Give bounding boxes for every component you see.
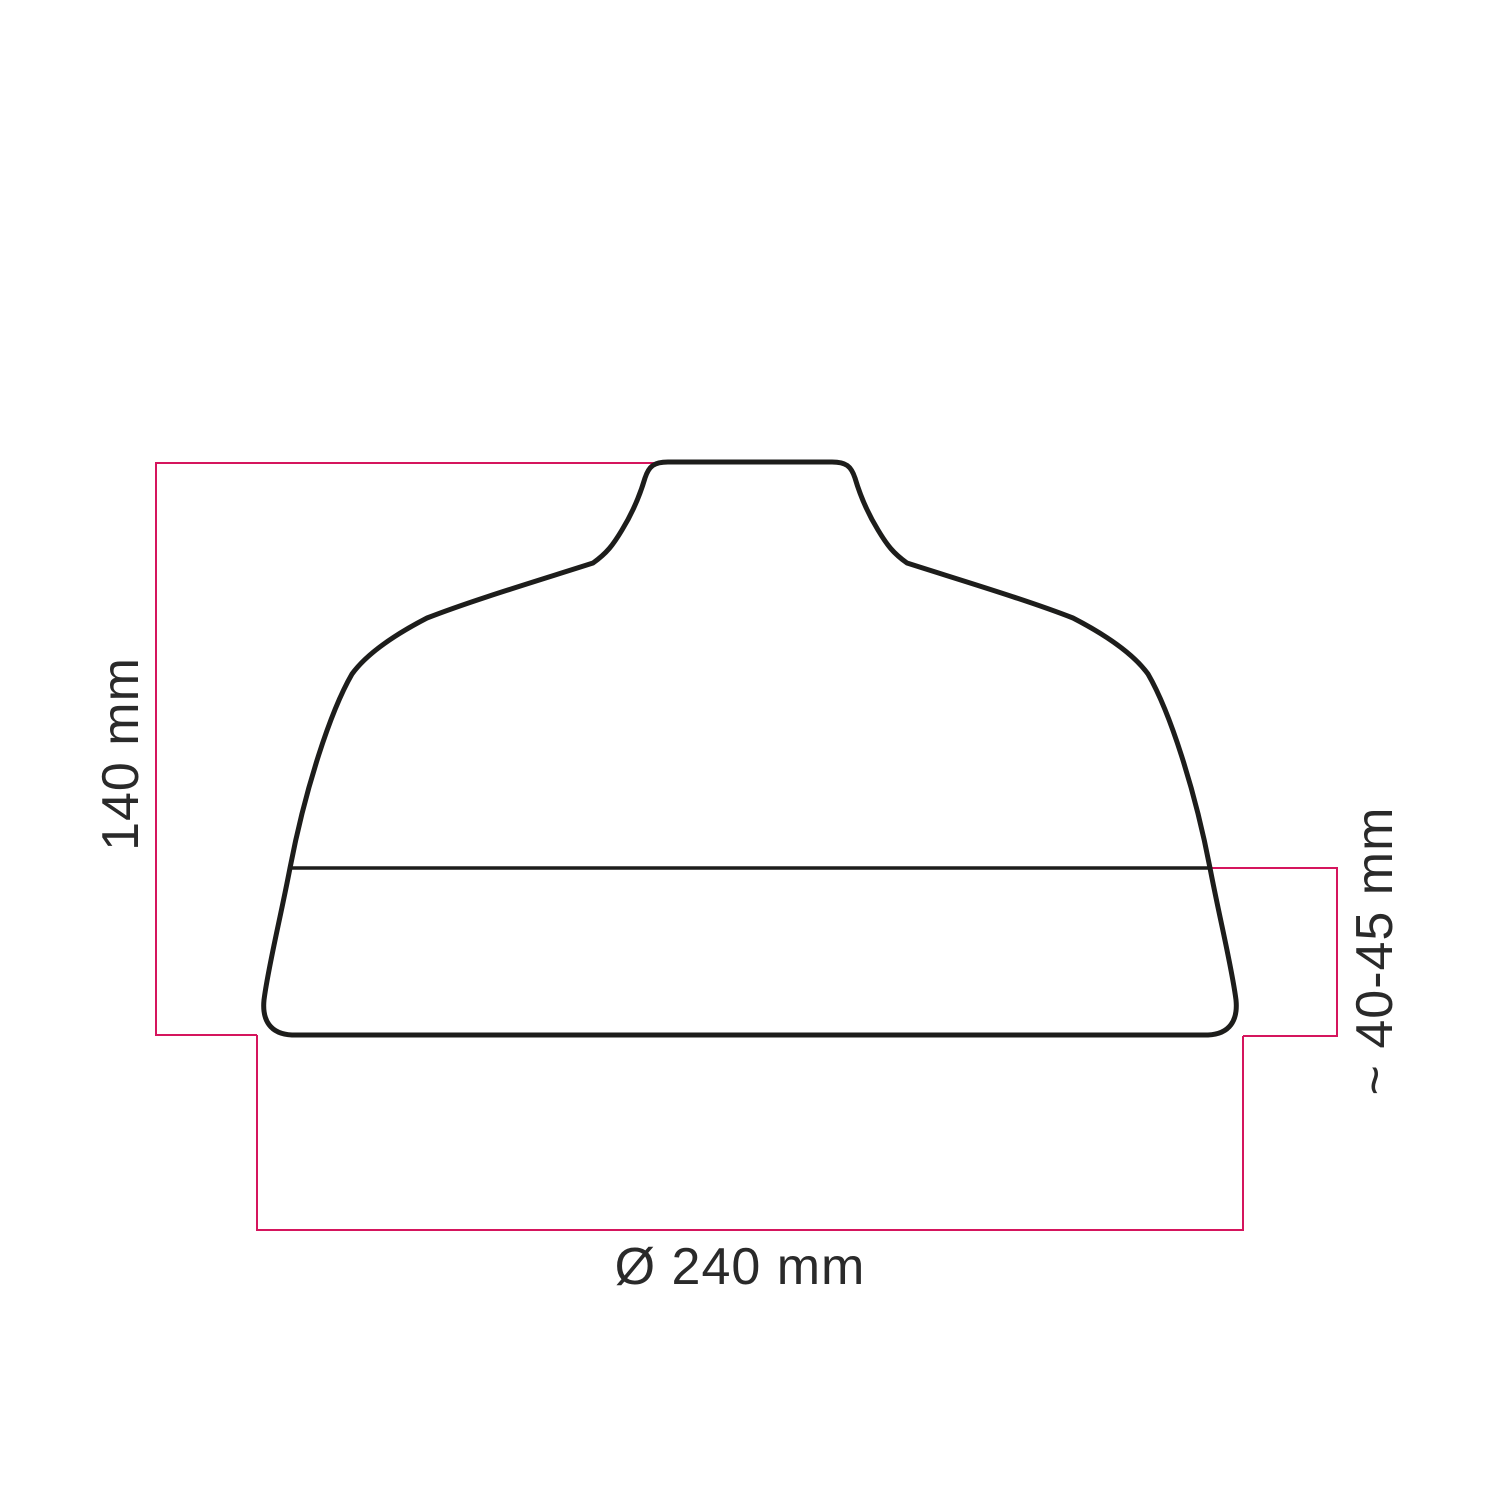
lampshade-dimension-diagram: 140 mm ~ 40-45 mm Ø 240 mm: [0, 0, 1500, 1500]
height-dimension-label: 140 mm: [92, 657, 150, 851]
rim-height-dimension-label: ~ 40-45 mm: [1346, 807, 1404, 1096]
diameter-dimension-lines: [257, 1035, 1243, 1230]
diameter-dimension-label: Ø 240 mm: [615, 1238, 866, 1296]
dimension-drawing-canvas: 140 mm ~ 40-45 mm Ø 240 mm: [0, 0, 1500, 1500]
lampshade-outline: [264, 462, 1237, 1035]
